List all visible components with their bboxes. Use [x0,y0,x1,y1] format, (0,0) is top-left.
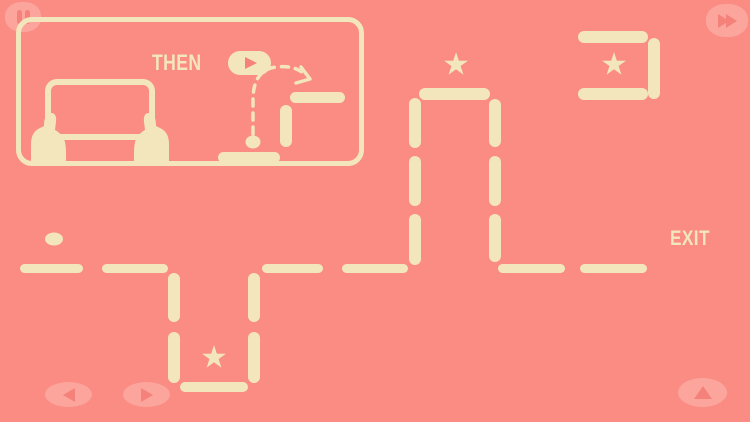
jump-button[interactable] [678,378,727,407]
platform-segment [409,214,421,265]
star-pickup: ★ [200,343,228,374]
play-icon [245,57,257,69]
triangle-left-icon [63,388,75,402]
fast-forward-button[interactable] [706,4,748,37]
platform-segment [20,264,83,273]
platform-segment [498,264,565,273]
platform-segment [419,88,490,100]
tutorial-play-button [228,51,271,75]
platform-segment [248,332,260,383]
platform-segment [648,38,660,99]
star-pickup: ★ [442,50,470,81]
triangle-up-icon [694,386,712,399]
tutorial-then-label: THEN [152,50,202,76]
platform-segment [342,264,408,273]
platform-segment [168,273,180,322]
exit-label: EXIT [670,227,710,251]
move-left-button[interactable] [45,382,92,407]
platform-segment [248,273,260,322]
platform-segment [102,264,168,273]
platform-segment [489,99,501,147]
platform-segment [409,98,421,148]
platform-segment [489,156,501,206]
triangle-right-icon [141,388,153,402]
platform-segment [409,156,421,206]
platform-segment [489,214,501,262]
star-pickup: ★ [600,50,628,81]
platform-segment [580,264,647,273]
fast-forward-icon [718,14,737,28]
move-right-button[interactable] [123,382,170,407]
platform-segment [180,382,248,392]
platform-segment [168,332,180,383]
player-ball [45,233,63,246]
platform-segment [578,88,648,100]
tutorial-panel: THEN [16,17,364,166]
platform-segment [578,31,648,43]
platform-segment [262,264,323,273]
